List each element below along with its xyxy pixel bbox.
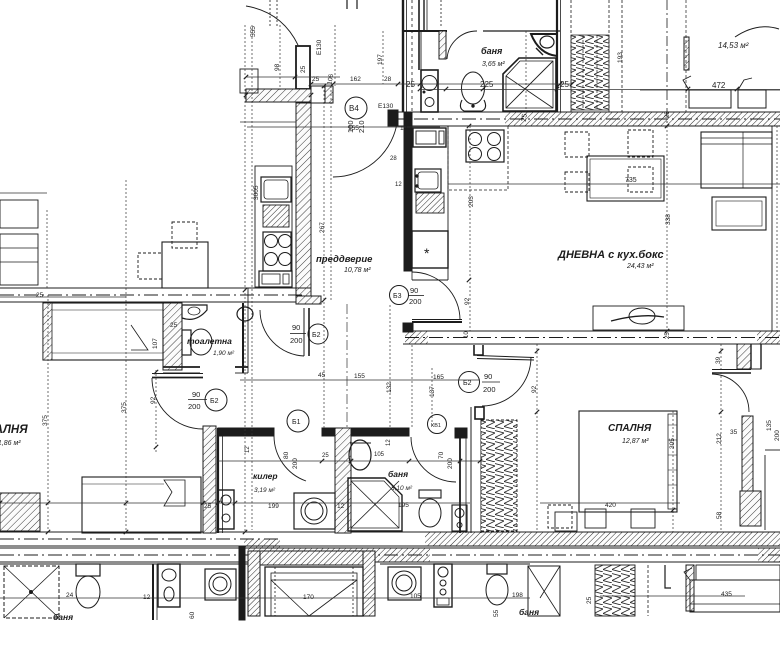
svg-text:14,53 м²: 14,53 м²: [718, 41, 749, 50]
svg-text:80: 80: [283, 451, 290, 459]
svg-text:12,87 м²: 12,87 м²: [622, 438, 649, 445]
svg-text:28: 28: [384, 76, 392, 83]
svg-text:45: 45: [318, 372, 326, 379]
svg-text:баня: баня: [53, 612, 73, 622]
svg-text:*: *: [424, 245, 430, 261]
svg-text:25: 25: [204, 503, 212, 510]
svg-text:3,10 м²: 3,10 м²: [391, 485, 413, 492]
svg-text:3005: 3005: [253, 185, 260, 200]
svg-text:баня: баня: [388, 469, 408, 479]
svg-text:155: 155: [354, 373, 365, 380]
svg-text:10: 10: [464, 331, 470, 338]
svg-text:435: 435: [721, 591, 732, 598]
svg-text:3,65 м²: 3,65 м²: [482, 61, 505, 68]
svg-text:735: 735: [625, 177, 637, 184]
svg-text:тоалетна: тоалетна: [187, 336, 232, 346]
svg-text:135: 135: [766, 420, 773, 431]
svg-text:Е130: Е130: [316, 39, 323, 55]
svg-text:199: 199: [268, 503, 279, 510]
svg-text:198: 198: [512, 592, 523, 599]
svg-text:39: 39: [715, 356, 722, 364]
svg-text:Б2: Б2: [210, 398, 219, 405]
svg-text:24: 24: [66, 592, 74, 599]
svg-text:25: 25: [521, 113, 529, 122]
svg-text:200: 200: [188, 402, 201, 411]
svg-text:Б3: Б3: [393, 293, 402, 300]
svg-text:162: 162: [350, 76, 361, 83]
svg-text:200: 200: [292, 458, 299, 469]
svg-text:Б2: Б2: [312, 332, 321, 339]
svg-text:25: 25: [665, 111, 671, 118]
svg-text:СПАЛНЯ: СПАЛНЯ: [0, 424, 28, 436]
svg-text:60: 60: [189, 611, 196, 619]
svg-text:24,43 м²: 24,43 м²: [626, 263, 654, 270]
svg-text:Е130: Е130: [378, 103, 394, 110]
svg-text:107: 107: [152, 338, 159, 349]
svg-text:1,90 м²: 1,90 м²: [213, 350, 235, 357]
svg-text:197: 197: [377, 54, 384, 65]
svg-text:225: 225: [480, 80, 494, 89]
svg-text:25: 25: [560, 80, 569, 89]
svg-text:105: 105: [374, 452, 385, 458]
svg-text:25: 25: [312, 76, 320, 83]
svg-text:98: 98: [274, 63, 281, 71]
svg-text:ДНЕВНА с кух.бокс: ДНЕВНА с кух.бокс: [557, 249, 664, 261]
svg-text:12: 12: [400, 125, 408, 132]
svg-text:12: 12: [143, 594, 151, 601]
svg-text:137: 137: [429, 386, 436, 397]
svg-text:12: 12: [337, 503, 345, 510]
svg-text:200: 200: [483, 385, 496, 394]
svg-text:200: 200: [290, 336, 303, 345]
svg-text:420: 420: [605, 502, 616, 509]
svg-text:375: 375: [121, 402, 128, 413]
svg-text:70: 70: [438, 451, 445, 459]
svg-text:килер: килер: [253, 471, 278, 481]
svg-text:105: 105: [410, 593, 421, 600]
svg-text:Б2: Б2: [463, 380, 472, 387]
svg-text:92: 92: [531, 385, 538, 393]
svg-text:170: 170: [303, 594, 314, 601]
svg-text:92: 92: [464, 297, 471, 305]
svg-text:3,19 м²: 3,19 м²: [254, 487, 276, 494]
svg-text:25: 25: [665, 332, 671, 339]
svg-text:203: 203: [468, 196, 475, 207]
svg-text:25: 25: [406, 80, 415, 89]
svg-text:35: 35: [730, 429, 738, 436]
svg-text:200: 200: [409, 297, 422, 306]
svg-text:25: 25: [586, 596, 593, 604]
svg-text:25: 25: [36, 292, 44, 299]
svg-text:СПАЛНЯ: СПАЛНЯ: [608, 423, 652, 434]
svg-text:21,86 м²: 21,86 м²: [0, 440, 21, 447]
svg-text:10,78 м²: 10,78 м²: [344, 267, 371, 274]
svg-text:472: 472: [712, 81, 726, 90]
svg-text:375: 375: [42, 415, 49, 426]
svg-text:195: 195: [398, 502, 409, 509]
svg-text:В4: В4: [349, 104, 359, 113]
svg-text:165: 165: [433, 374, 444, 381]
svg-text:200: 200: [447, 458, 454, 469]
svg-text:92: 92: [150, 396, 157, 404]
svg-text:баня: баня: [481, 46, 503, 56]
svg-text:90: 90: [192, 390, 200, 399]
svg-text:155: 155: [348, 125, 359, 132]
svg-text:555: 555: [250, 26, 257, 37]
svg-text:преддверие: преддверие: [316, 254, 373, 265]
svg-text:25: 25: [170, 322, 178, 329]
svg-text:55: 55: [493, 609, 500, 617]
svg-text:28: 28: [390, 156, 397, 162]
svg-text:132: 132: [386, 382, 393, 393]
svg-text:90: 90: [292, 323, 300, 332]
svg-text:90: 90: [410, 286, 418, 295]
svg-text:305: 305: [669, 438, 676, 449]
svg-text:12: 12: [395, 182, 402, 188]
svg-text:баня: баня: [519, 607, 539, 617]
svg-text:25: 25: [322, 453, 329, 459]
svg-text:193: 193: [617, 52, 624, 63]
svg-text:267: 267: [319, 222, 326, 233]
svg-text:212: 212: [716, 433, 723, 444]
svg-text:12: 12: [386, 439, 392, 446]
svg-text:КВ1: КВ1: [431, 423, 441, 429]
svg-text:58: 58: [716, 511, 723, 519]
svg-text:200: 200: [774, 430, 780, 441]
svg-text:Б1: Б1: [292, 419, 301, 426]
svg-text:12: 12: [245, 446, 251, 453]
svg-text:338: 338: [665, 214, 672, 225]
svg-text:25: 25: [300, 65, 307, 73]
svg-text:90: 90: [484, 372, 492, 381]
